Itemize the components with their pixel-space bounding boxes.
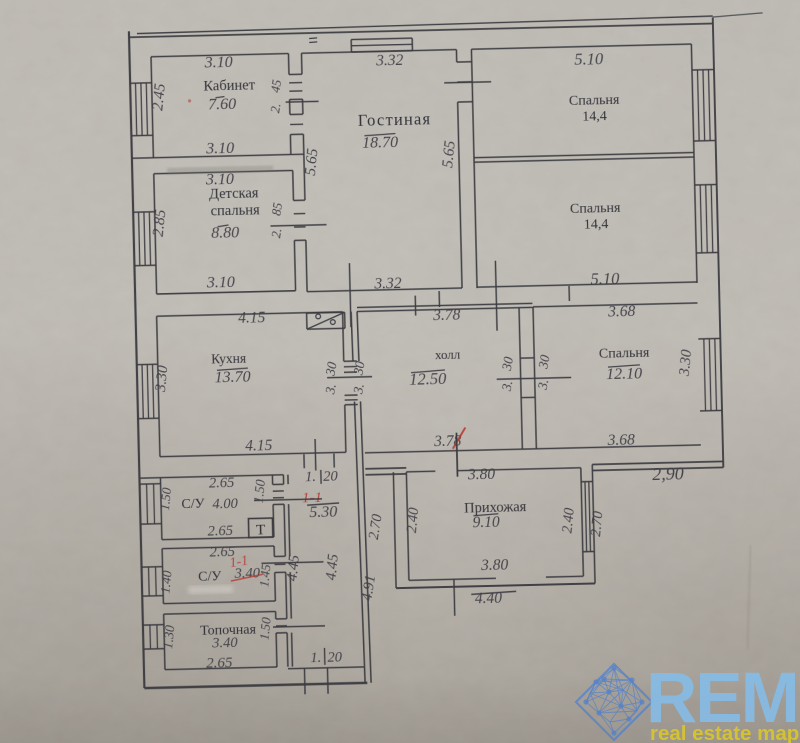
svg-text:2.65: 2.65 xyxy=(206,655,233,672)
svg-text:Т: Т xyxy=(256,522,266,538)
svg-text:Гостиная: Гостиная xyxy=(358,109,432,130)
svg-text:4.15: 4.15 xyxy=(245,437,273,455)
svg-text:Спальня: Спальня xyxy=(570,201,621,217)
svg-text:7.60: 7.60 xyxy=(208,96,236,114)
svg-text:4.45: 4.45 xyxy=(284,554,303,582)
svg-text:1.30: 1.30 xyxy=(160,624,177,649)
svg-text:20: 20 xyxy=(323,468,339,484)
svg-text:14,4: 14,4 xyxy=(582,109,607,125)
svg-text:18.70: 18.70 xyxy=(362,134,398,152)
svg-text:С/У: С/У xyxy=(181,497,205,513)
svg-text:2.70: 2.70 xyxy=(588,510,606,538)
svg-text:1.50: 1.50 xyxy=(251,479,268,504)
svg-text:Кухня: Кухня xyxy=(211,351,246,367)
svg-text:4.45: 4.45 xyxy=(323,553,342,581)
svg-text:1.45: 1.45 xyxy=(256,563,273,588)
svg-text:3.30: 3.30 xyxy=(153,364,172,393)
svg-text:3.68: 3.68 xyxy=(607,303,636,321)
svg-text:4.15: 4.15 xyxy=(238,309,266,327)
svg-text:3.78: 3.78 xyxy=(432,307,461,325)
svg-text:Спальня: Спальня xyxy=(599,346,650,362)
svg-text:1.: 1. xyxy=(310,650,321,666)
svg-text:2.40: 2.40 xyxy=(404,506,422,534)
svg-text:9.10: 9.10 xyxy=(472,514,500,532)
svg-text:2.45: 2.45 xyxy=(149,82,169,111)
svg-text:1.50: 1.50 xyxy=(157,486,174,511)
svg-text:3.10: 3.10 xyxy=(205,171,234,189)
svg-text:8.80: 8.80 xyxy=(211,224,239,242)
svg-text:3.68: 3.68 xyxy=(606,431,635,449)
svg-text:холл: холл xyxy=(435,347,461,363)
svg-text:2.65: 2.65 xyxy=(209,475,235,492)
svg-text:12.10: 12.10 xyxy=(606,365,642,383)
svg-text:5.30: 5.30 xyxy=(309,504,337,522)
svg-text:30: 30 xyxy=(535,353,552,370)
svg-text:real estate map: real estate map xyxy=(650,722,799,743)
svg-text:4.00: 4.00 xyxy=(212,496,238,513)
svg-text:спальня: спальня xyxy=(210,202,260,219)
svg-text:30: 30 xyxy=(350,360,367,377)
svg-text:13.70: 13.70 xyxy=(214,369,250,387)
svg-text:2.40: 2.40 xyxy=(559,506,577,534)
svg-text:3.32: 3.32 xyxy=(373,275,402,293)
svg-text:5.65: 5.65 xyxy=(439,140,459,169)
svg-text:3.32: 3.32 xyxy=(375,52,404,70)
svg-text:1.50: 1.50 xyxy=(256,616,273,641)
svg-text:14,4: 14,4 xyxy=(584,217,609,233)
svg-text:Кабинет: Кабинет xyxy=(203,77,256,94)
svg-text:2.65: 2.65 xyxy=(207,523,233,540)
svg-text:3.10: 3.10 xyxy=(205,140,234,158)
svg-text:30: 30 xyxy=(499,355,516,372)
svg-text:20: 20 xyxy=(327,649,343,665)
svg-text:2,90: 2,90 xyxy=(652,463,684,484)
svg-text:30: 30 xyxy=(322,360,339,377)
svg-text:5.10: 5.10 xyxy=(590,269,620,289)
svg-text:1.40: 1.40 xyxy=(157,569,174,594)
svg-text:С/У: С/У xyxy=(198,569,222,585)
svg-text:Спальня: Спальня xyxy=(569,93,620,109)
svg-text:3.40: 3.40 xyxy=(211,635,238,652)
svg-text:2.85: 2.85 xyxy=(150,208,170,237)
svg-text:3.80: 3.80 xyxy=(480,557,509,575)
svg-text:5.10: 5.10 xyxy=(574,49,604,69)
svg-text:3.30: 3.30 xyxy=(677,348,696,377)
svg-text:3.80: 3.80 xyxy=(467,466,496,484)
svg-text:3.10: 3.10 xyxy=(206,274,235,292)
svg-text:1.: 1. xyxy=(305,469,316,485)
svg-text:5.65: 5.65 xyxy=(302,147,322,176)
svg-text:3.10: 3.10 xyxy=(203,54,232,72)
